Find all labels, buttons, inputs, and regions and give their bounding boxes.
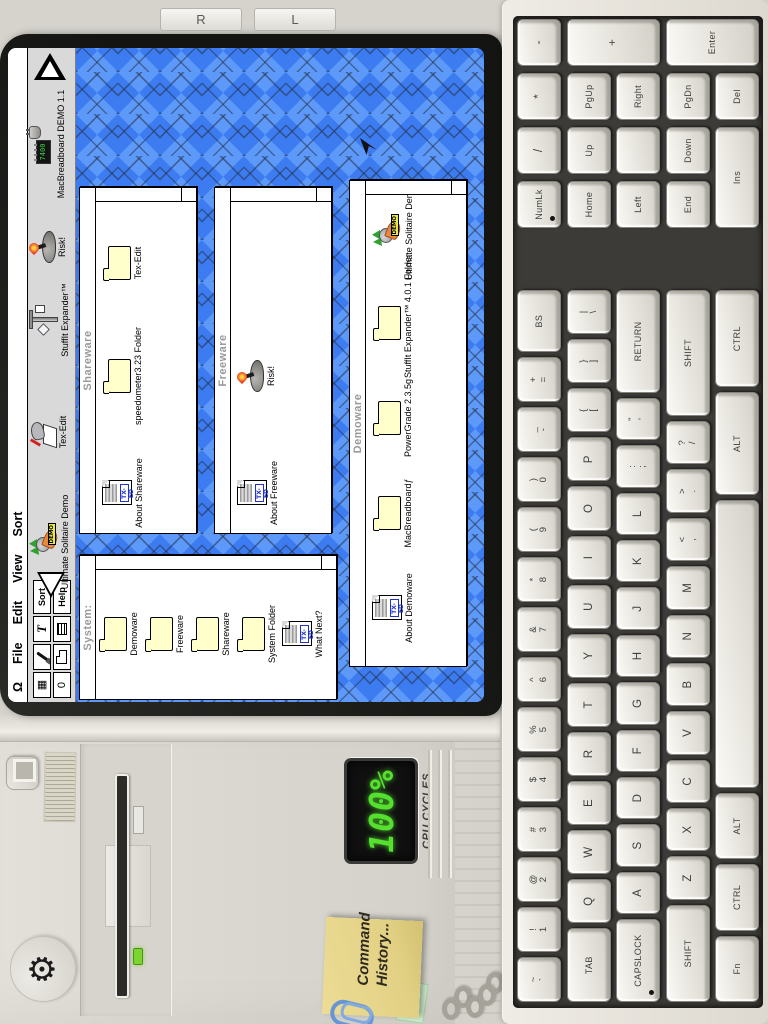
rk-fire: [235, 370, 249, 384]
folder-icon[interactable]: [53, 644, 71, 670]
key-sub: {: [579, 409, 589, 412]
italic-t-icon[interactable]: T: [33, 616, 51, 642]
key-7[interactable]: &7: [517, 607, 561, 652]
keycap-label: *8: [529, 577, 549, 582]
keycap-label: *: [533, 94, 545, 98]
key-main: [: [589, 409, 599, 412]
keycap-label: D: [632, 794, 644, 802]
window-items: DemowareFreewareSharewareSystem FolderTX…: [98, 569, 328, 699]
keyboard-numpad: NumLk/*-HomeUpPgUp+LeftRightEndDownPgDnE…: [517, 18, 759, 228]
mac-screen: ΩFileEditViewSort ▦TSort0Help DEMOUltima…: [8, 48, 484, 702]
keycap-label: I: [583, 556, 595, 559]
key-CTRL[interactable]: CTRL: [715, 864, 759, 930]
folder-icon: [104, 617, 127, 651]
key-S[interactable]: S: [616, 824, 660, 866]
glyph: T: [37, 625, 47, 633]
key-main: 1: [539, 927, 549, 932]
list-icon[interactable]: [53, 616, 71, 642]
key-main: 9: [539, 527, 549, 532]
menu-item-file[interactable]: File: [11, 642, 25, 664]
keycap-label: E: [583, 799, 595, 807]
key-U[interactable]: U: [567, 585, 611, 629]
keycap-label: Enter: [707, 31, 717, 55]
sticky-note-line1: Command: [354, 918, 373, 985]
key-SHIFT[interactable]: SHIFT: [666, 290, 710, 416]
joker-icon: DEMO: [372, 217, 402, 249]
desktop-icon-2[interactable]: Tex-Edit: [29, 377, 68, 487]
st-top: [29, 310, 33, 329]
key-\[interactable]: |\: [567, 290, 611, 334]
key-main: ]: [589, 360, 599, 363]
key-ALT[interactable]: ALT: [715, 793, 759, 859]
txed-icon: TX-ED: [102, 481, 132, 506]
file-label: PowerGrade 2.3.5g: [403, 363, 413, 473]
keycap-label: F: [632, 747, 644, 754]
key-C[interactable]: C: [666, 760, 710, 803]
settings-button[interactable]: ⚙: [10, 936, 76, 1002]
key-Right[interactable]: Right: [616, 73, 660, 120]
file-label: Shareware: [221, 569, 231, 699]
file-item[interactable]: PowerGrade 2.3.5g: [372, 363, 413, 473]
keycap-label: ~`: [529, 977, 549, 983]
key-Ins[interactable]: Ins: [715, 127, 759, 228]
key-main: 6: [539, 677, 549, 682]
key-,[interactable]: <,: [666, 518, 710, 561]
window-title: Shareware: [82, 330, 94, 390]
key-row: FnCTRLALTALTCTRL: [715, 290, 759, 1002]
keycap-label: -: [533, 41, 545, 45]
finder-desktop: System:DemowareFreewareSharewareSystem F…: [76, 48, 484, 702]
key-main: 5: [539, 727, 549, 732]
keycap-label: Fn: [732, 963, 742, 974]
gear-icon: ⚙: [23, 954, 63, 984]
keycap-label: X: [682, 826, 694, 834]
key-Left[interactable]: Left: [616, 181, 660, 228]
rotate-right-button[interactable]: R: [160, 8, 242, 31]
window-shareware[interactable]: SharewareTX-EDAbout Sharewarespeedometer…: [79, 187, 197, 534]
power-button[interactable]: [6, 756, 39, 790]
keycap-label: H: [632, 652, 644, 660]
keycap-label: :;: [628, 465, 648, 468]
keycap-label: CTRL: [732, 885, 742, 910]
keycap-label: K: [632, 557, 644, 565]
key-][interactable]: }]: [567, 339, 611, 383]
key-W[interactable]: W: [567, 830, 611, 874]
key-SHIFT[interactable]: SHIFT: [666, 905, 710, 1002]
keycap-label: {[: [579, 409, 599, 412]
file-item[interactable]: TX-EDAbout Shareware: [102, 438, 144, 548]
keycap-label: BS: [534, 315, 544, 328]
key-Fn[interactable]: Fn: [715, 936, 759, 1002]
file-item[interactable]: TX-EDAbout Freeware: [237, 438, 279, 548]
keycap-label: PgDn: [683, 84, 693, 108]
file-item[interactable]: Risk!: [237, 321, 276, 431]
key-6[interactable]: ^6: [517, 657, 561, 702]
file-item[interactable]: MacBreadboardƒ: [372, 458, 413, 568]
brush-icon[interactable]: [33, 644, 51, 670]
key-D[interactable]: D: [616, 777, 660, 819]
key-[[interactable]: {[: [567, 388, 611, 432]
key-H[interactable]: H: [616, 635, 660, 677]
keycap-label: SHIFT: [683, 339, 693, 367]
window-sizebox: [321, 556, 322, 570]
window-titlebar[interactable]: Demoware: [350, 181, 366, 666]
key-PgDn[interactable]: PgDn: [666, 73, 710, 120]
keycap-label: Down: [683, 138, 693, 163]
file-label: About Shareware: [134, 438, 144, 548]
folder-icon: [108, 359, 131, 393]
key-L[interactable]: L: [616, 493, 660, 535]
keycap-label: SHIFT: [683, 939, 693, 967]
key-End[interactable]: End: [666, 181, 710, 228]
key-N[interactable]: N: [666, 615, 710, 658]
menu-bar: ΩFileEditViewSort: [8, 48, 28, 702]
key-sub: |: [579, 311, 589, 313]
keycap-label: )0: [529, 477, 549, 482]
desktop-icon-5[interactable]: 7400MacBreadboard DEMO 1.1: [29, 89, 66, 199]
rk-fire: [27, 241, 41, 255]
desktop-icon-1[interactable]: DEMOUltimate Solitaire Demo: [29, 487, 70, 597]
key-A[interactable]: A: [616, 872, 660, 914]
key-G[interactable]: G: [616, 682, 660, 724]
plug-icon: [29, 126, 41, 139]
file-item[interactable]: System Folder: [236, 569, 282, 699]
grid-icon[interactable]: ▦: [33, 672, 51, 698]
key-row: TABQWERTYUIOP{[}]|\: [567, 290, 611, 1002]
keycap-label: End: [683, 196, 693, 213]
desktop-icon-label: Ultimate Solitaire Demo: [60, 487, 70, 597]
file-label: Demoware: [129, 569, 139, 699]
demo-badge: DEMO: [48, 523, 56, 545]
folder-icon-shape: [59, 650, 67, 664]
key-3[interactable]: #3: [517, 807, 561, 852]
keycap-label: NumLk: [534, 189, 544, 220]
file-item[interactable]: TX-EDAbout Demoware: [372, 553, 414, 663]
desktop-icon-label: Tex-Edit: [58, 377, 68, 487]
desktop-icon-4[interactable]: Risk!: [29, 192, 67, 302]
brush-icon-shape: [36, 652, 48, 662]
key-main: ': [638, 418, 648, 420]
key-J[interactable]: J: [616, 587, 660, 629]
key-led: [649, 990, 654, 995]
sticky-note-line2: History...: [373, 919, 392, 986]
keycap-label: S: [632, 842, 644, 850]
menu-item-view[interactable]: View: [11, 555, 25, 583]
keycap-label: G: [632, 699, 644, 708]
key-main: 2: [539, 877, 549, 882]
keyboard-main-block: ~`!1@2#3$4%5^6&7*8(9)0_-+=BSTABQWERTYUIO…: [517, 290, 759, 1002]
keycap-label: Home: [584, 192, 594, 218]
file-label: Tex-Edit: [133, 208, 143, 318]
drive-activity-led: [133, 948, 143, 965]
key-+[interactable]: +: [567, 19, 661, 66]
key-Enter[interactable]: Enter: [666, 19, 760, 66]
barcode-sticker: [43, 752, 76, 823]
key-K[interactable]: K: [616, 540, 660, 582]
key-main: `: [539, 978, 549, 981]
key-CAPSLOCK[interactable]: CAPSLOCK: [616, 919, 660, 1002]
key-Up[interactable]: Up: [567, 127, 611, 174]
file-item[interactable]: Tex-Edit: [102, 208, 143, 318]
key-led: [550, 216, 555, 221]
keycap-label: CAPSLOCK: [633, 935, 643, 987]
key-X[interactable]: X: [666, 808, 710, 851]
desktop-icon-label: MacBreadboard DEMO 1.1: [56, 89, 66, 199]
keycap-label: Del: [732, 89, 742, 104]
keycap-label: %5: [529, 725, 549, 733]
file-label: speedometer3.23 Folder: [133, 321, 143, 431]
rotate-left-button[interactable]: L: [254, 8, 336, 31]
key-main: 7: [539, 627, 549, 632]
key-5[interactable]: %5: [517, 707, 561, 752]
tx-page: [43, 424, 57, 449]
keycap-label: Y: [583, 652, 595, 660]
folder-icon: [378, 401, 401, 435]
key-main: 0: [539, 477, 549, 482]
txed-tag: TX-ED: [390, 600, 399, 618]
key-RETURN[interactable]: RETURN: [616, 290, 660, 393]
cpu-cycles-value: 100%: [362, 769, 401, 852]
st-page: [35, 305, 45, 313]
folder-icon: [378, 496, 401, 530]
key-main: \: [589, 311, 599, 314]
risk-icon: [29, 230, 56, 264]
key-Z[interactable]: Z: [666, 856, 710, 899]
desk-scene: ⚙ 100% CPU CYCLES Command History... ΩFi…: [0, 0, 768, 1024]
keycap-label: Z: [682, 875, 694, 882]
key-2[interactable]: @2: [517, 857, 561, 902]
keycap-label: #3: [529, 827, 549, 832]
tower-edge: [0, 715, 500, 742]
window-scrollbar[interactable]: [96, 556, 336, 570]
keycap-label: ALT: [732, 435, 742, 452]
key-Y[interactable]: Y: [567, 634, 611, 678]
key-row: CAPSLOCKASDFGHJKL:;"'RETURN: [616, 290, 660, 1002]
key-sub: <: [678, 537, 688, 543]
keycap-label: +=: [529, 377, 549, 383]
menu-item-sort[interactable]: Sort: [11, 512, 25, 537]
window-titlebar[interactable]: System:: [80, 556, 96, 699]
window-sizebox: [451, 181, 452, 195]
keycap-label: B: [682, 681, 694, 689]
keycap-label: Ins: [732, 171, 742, 184]
key-.[interactable]: >.: [666, 469, 710, 512]
key-4[interactable]: $4: [517, 757, 561, 802]
key-1[interactable]: !1: [517, 907, 561, 952]
risk-icon: [237, 359, 264, 393]
window-demoware[interactable]: DemowareTX-EDAbout DemowareMacBreadboard…: [349, 180, 467, 667]
key-E[interactable]: E: [567, 781, 611, 825]
keycap-label: @2: [529, 875, 549, 885]
eject-button[interactable]: [133, 806, 144, 834]
chip-icon: 7400: [29, 124, 55, 164]
key-ALT[interactable]: ALT: [715, 392, 759, 494]
st-bar: [32, 317, 58, 322]
key-PgUp[interactable]: PgUp: [567, 73, 611, 120]
window-titlebar[interactable]: Freeware: [215, 188, 231, 533]
keycap-label: R: [583, 750, 595, 758]
key-8[interactable]: *8: [517, 557, 561, 602]
case-grooves: [428, 750, 452, 878]
folder-icon: [196, 617, 219, 651]
file-item[interactable]: Demoware: [98, 569, 144, 699]
key-F[interactable]: F: [616, 730, 660, 772]
file-label: System Folder: [267, 569, 277, 699]
key-B[interactable]: B: [666, 663, 710, 706]
window-sizebox: [181, 188, 182, 202]
key-Home[interactable]: Home: [567, 181, 611, 228]
file-label: MacBreadboardƒ: [403, 458, 413, 568]
keycap-label: !1: [529, 927, 549, 932]
key-Q[interactable]: Q: [567, 879, 611, 923]
key-main: ,: [688, 538, 698, 541]
key-;[interactable]: :;: [616, 445, 660, 487]
glyph: ▦: [37, 680, 47, 690]
keyboard: ~`!1@2#3$4%5^6&7*8(9)0_-+=BSTABQWERTYUIO…: [502, 0, 768, 1024]
key-row: ~`!1@2#3$4%5^6&7*8(9)0_-+=BS: [517, 290, 561, 1002]
stuffit-icon: [29, 305, 59, 335]
keycap-label: ?/: [678, 440, 698, 445]
key-R[interactable]: R: [567, 732, 611, 776]
file-label: About Freeware: [269, 438, 279, 548]
key-main: 8: [539, 577, 549, 582]
file-item[interactable]: Shareware: [190, 569, 236, 699]
txed-tag: TX-ED: [255, 485, 264, 503]
key-main: 4: [539, 777, 549, 782]
key-TAB[interactable]: TAB: [567, 928, 611, 1002]
file-label: About Demoware: [404, 553, 414, 663]
folder-icon: [242, 617, 265, 651]
keycap-label: (9: [529, 527, 549, 532]
keycap-label: &7: [529, 626, 549, 632]
floppy-slot[interactable]: [115, 774, 129, 998]
keycap-label: /: [533, 149, 545, 152]
keycap-label: <,: [678, 537, 698, 543]
key-CTRL[interactable]: CTRL: [715, 290, 759, 387]
keycap-label: T: [583, 701, 595, 708]
keycap-label: L: [632, 511, 644, 517]
file-item[interactable]: TX-EDWhat Next?: [282, 569, 328, 699]
key--[interactable]: _-: [517, 407, 561, 452]
emulator-viewport: ⚙ 100% CPU CYCLES Command History... ΩFi…: [0, 0, 768, 1024]
key-sub: ?: [678, 440, 688, 445]
key-Down[interactable]: Down: [666, 127, 710, 174]
key-main: -: [539, 428, 549, 431]
keycap-label: +: [607, 39, 619, 46]
chip-7400: 7400: [36, 140, 51, 164]
keycap-label: Up: [584, 144, 594, 156]
glyph: 0: [57, 682, 67, 688]
window-freeware[interactable]: FreewareTX-EDAbout FreewareRisk!: [214, 187, 332, 534]
key-*[interactable]: *: [517, 73, 561, 120]
key-V[interactable]: V: [666, 711, 710, 754]
folder-icon: [150, 617, 173, 651]
file-item[interactable]: speedometer3.23 Folder: [102, 321, 143, 431]
key-T[interactable]: T: [567, 683, 611, 727]
key-/[interactable]: ?/: [666, 421, 710, 464]
file-item[interactable]: Freeware: [144, 569, 190, 699]
menu-item-edit[interactable]: Edit: [11, 601, 25, 625]
key-space[interactable]: [715, 500, 759, 788]
key-Del[interactable]: Del: [715, 73, 759, 120]
keycap-label: Left: [633, 196, 643, 213]
joker-icon: DEMO: [29, 526, 59, 558]
file-label: Freeware: [175, 569, 185, 699]
keycap-label: ^6: [529, 677, 549, 682]
txed-icon: TX-ED: [282, 622, 312, 647]
key-I[interactable]: I: [567, 536, 611, 580]
keycap-label: A: [632, 889, 644, 897]
keycap-label: Right: [633, 85, 643, 108]
window-title: Demoware: [352, 394, 364, 454]
keycap-label: ALT: [732, 817, 742, 834]
key-main: .: [688, 490, 698, 493]
clip-icon[interactable]: 0: [53, 672, 71, 698]
file-label: Risk!: [266, 321, 276, 431]
list-icon-shape: [57, 623, 67, 635]
key-main: /: [688, 441, 698, 444]
keycap-label: _-: [529, 427, 549, 432]
folder-icon: [378, 306, 401, 340]
key-blank[interactable]: [616, 127, 660, 174]
key-=[interactable]: +=: [517, 357, 561, 402]
window-title: System:: [82, 604, 94, 650]
keycap-label: O: [583, 504, 595, 513]
keycap-label: V: [682, 729, 694, 737]
window-titlebar[interactable]: Shareware: [80, 188, 96, 533]
key-'[interactable]: "': [616, 398, 660, 440]
key-9[interactable]: (9: [517, 507, 561, 552]
txed-tag: TX-ED: [300, 626, 309, 644]
key-O[interactable]: O: [567, 486, 611, 530]
folder-icon: [108, 246, 131, 280]
keycap-label: J: [632, 606, 644, 612]
keycap-label: >.: [678, 488, 698, 494]
keycap-label: CTRL: [732, 326, 742, 351]
key-`[interactable]: ~`: [517, 957, 561, 1002]
key-/[interactable]: /: [517, 127, 561, 174]
key-main: =: [539, 377, 549, 383]
keycap-label: W: [583, 847, 595, 858]
st-d: [37, 323, 50, 336]
mouse-cursor: [360, 138, 377, 155]
key-sub: }: [579, 360, 589, 363]
keycap-label: TAB: [584, 956, 594, 974]
keycap-label: M: [682, 583, 694, 593]
txed-icon: TX-ED: [372, 596, 402, 621]
keycap-label: P: [583, 456, 595, 464]
key-0[interactable]: )0: [517, 457, 561, 502]
keycap-label: C: [682, 777, 694, 785]
window-title: Freeware: [217, 334, 229, 386]
keycap-label: |\: [579, 311, 599, 314]
window-system[interactable]: System:DemowareFreewareSharewareSystem F…: [79, 555, 337, 700]
key-main: 3: [539, 827, 549, 832]
icon-shelf: ▦TSort0Help DEMOUltimate Solitaire DemoT…: [28, 48, 76, 702]
keycap-label: Q: [583, 897, 595, 906]
demo-badge: DEMO: [391, 214, 399, 236]
key-BS[interactable]: BS: [517, 290, 561, 352]
txed-icon: TX-ED: [237, 481, 267, 506]
key-M[interactable]: M: [666, 566, 710, 609]
key--[interactable]: -: [517, 19, 561, 66]
key-NumLk[interactable]: NumLk: [517, 181, 561, 228]
right-arrow-icon[interactable]: [34, 53, 66, 80]
keycap-label: RETURN: [633, 321, 643, 361]
key-P[interactable]: P: [567, 437, 611, 481]
menu-item-ω[interactable]: Ω: [11, 682, 25, 692]
key-row: SHIFTZXCVBNM<,>.?/SHIFT: [666, 290, 710, 1002]
